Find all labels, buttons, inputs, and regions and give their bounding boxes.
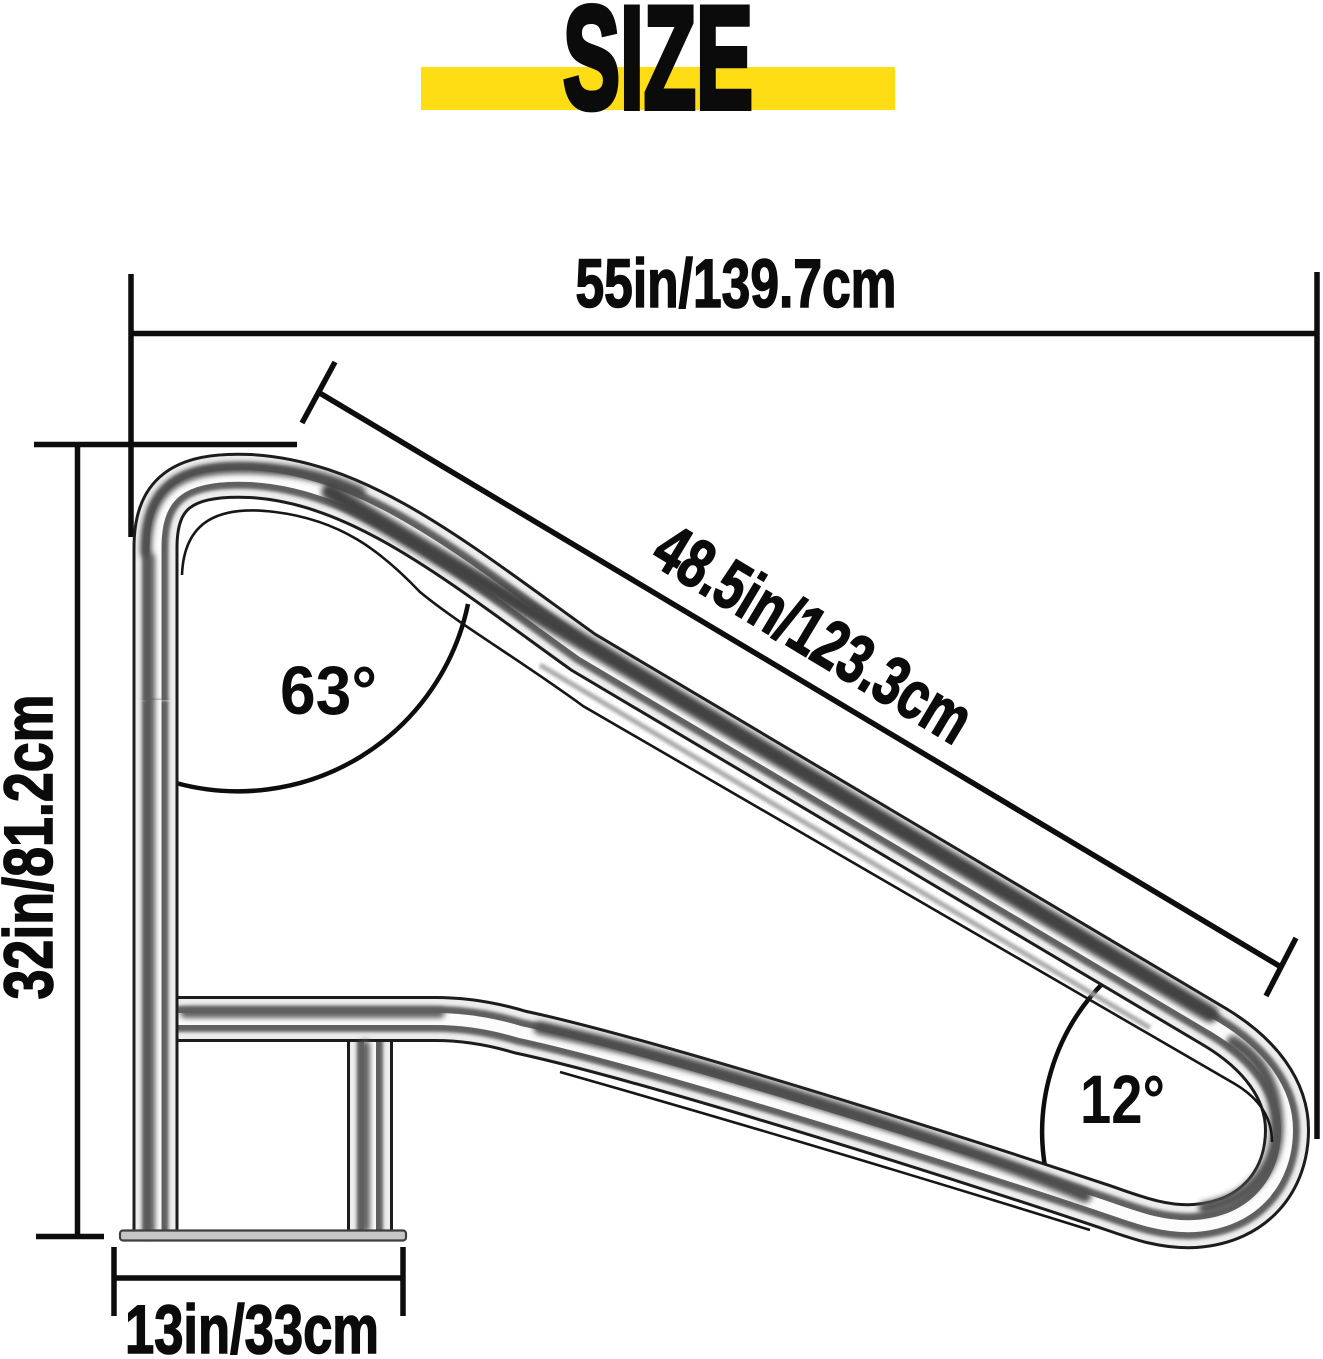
svg-text:12°: 12° (1080, 1061, 1165, 1138)
svg-text:63°: 63° (280, 652, 377, 729)
svg-text:13in/33cm: 13in/33cm (125, 1291, 379, 1359)
svg-text:32in/81.2cm: 32in/81.2cm (0, 695, 67, 1000)
svg-text:55in/139.7cm: 55in/139.7cm (576, 245, 897, 322)
svg-text:SIZE: SIZE (563, 0, 753, 139)
